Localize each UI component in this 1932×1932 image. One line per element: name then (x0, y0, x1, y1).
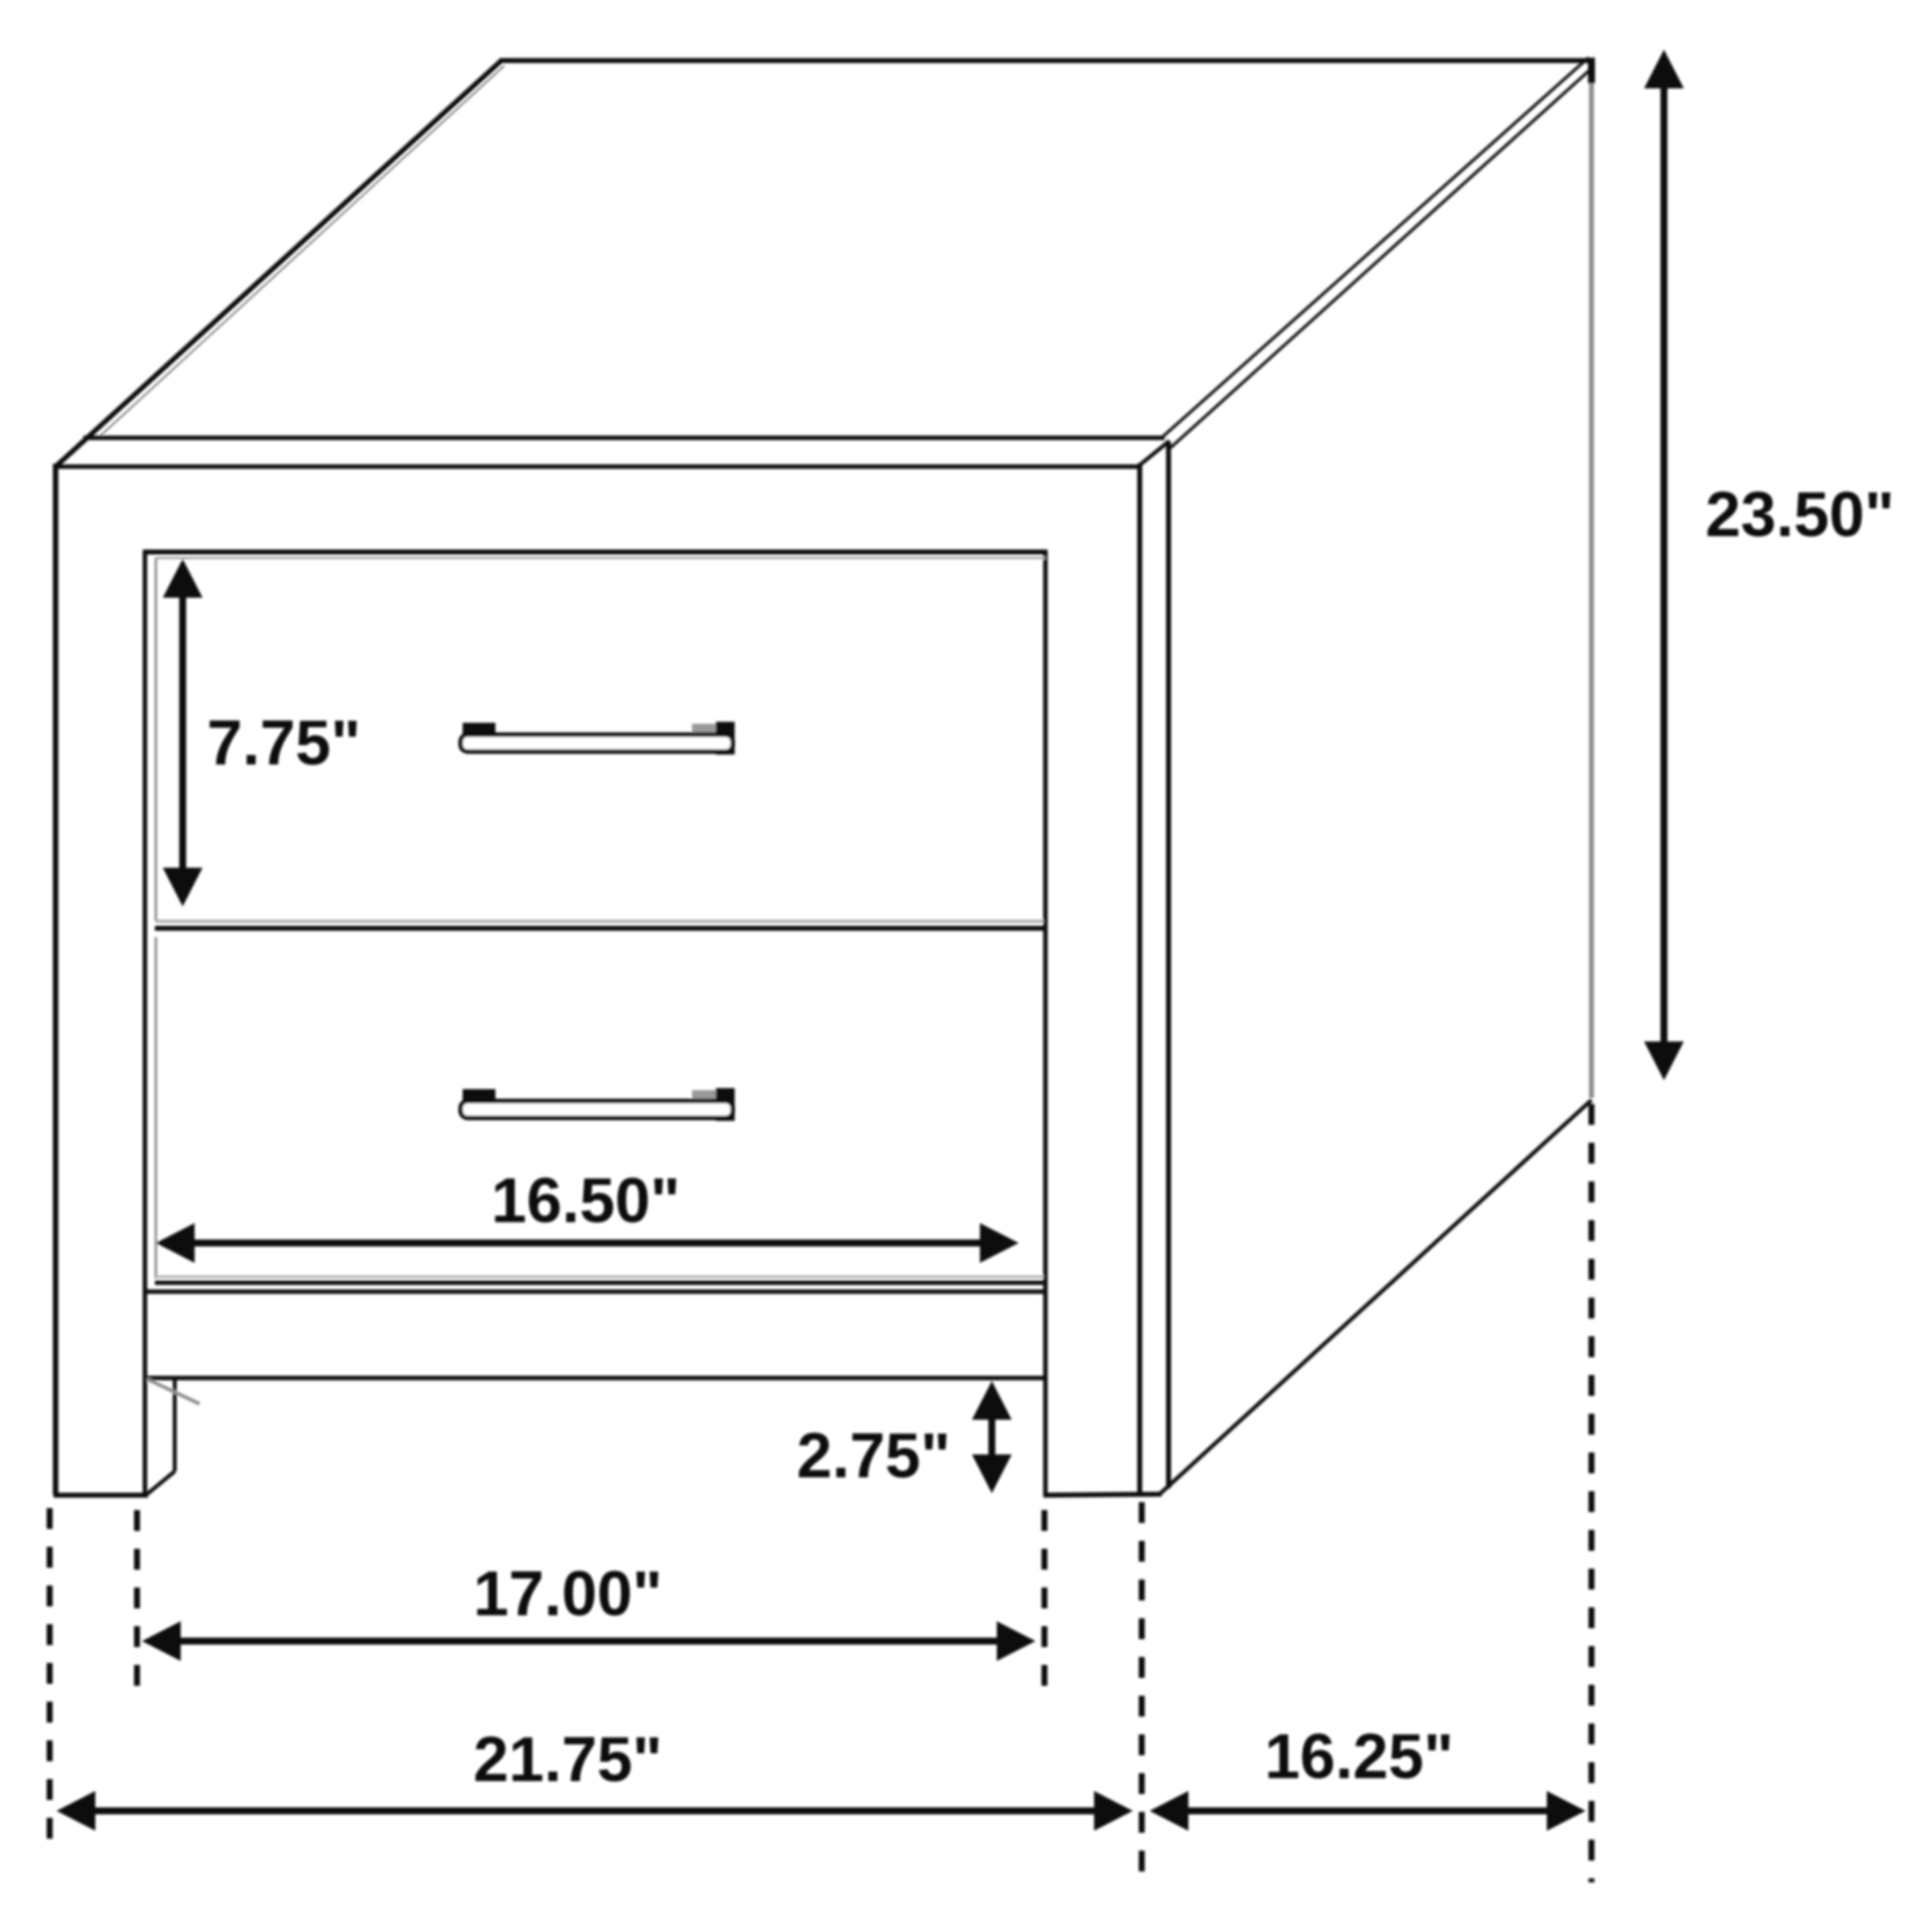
svg-text:7.75": 7.75" (207, 707, 361, 778)
svg-text:16.25": 16.25" (1265, 1721, 1454, 1792)
svg-text:21.75": 21.75" (474, 1724, 663, 1795)
svg-text:16.50": 16.50" (491, 1165, 681, 1236)
svg-text:17.00": 17.00" (474, 1558, 663, 1629)
svg-text:23.50": 23.50" (1706, 479, 1895, 550)
svg-text:2.75": 2.75" (797, 1420, 951, 1491)
